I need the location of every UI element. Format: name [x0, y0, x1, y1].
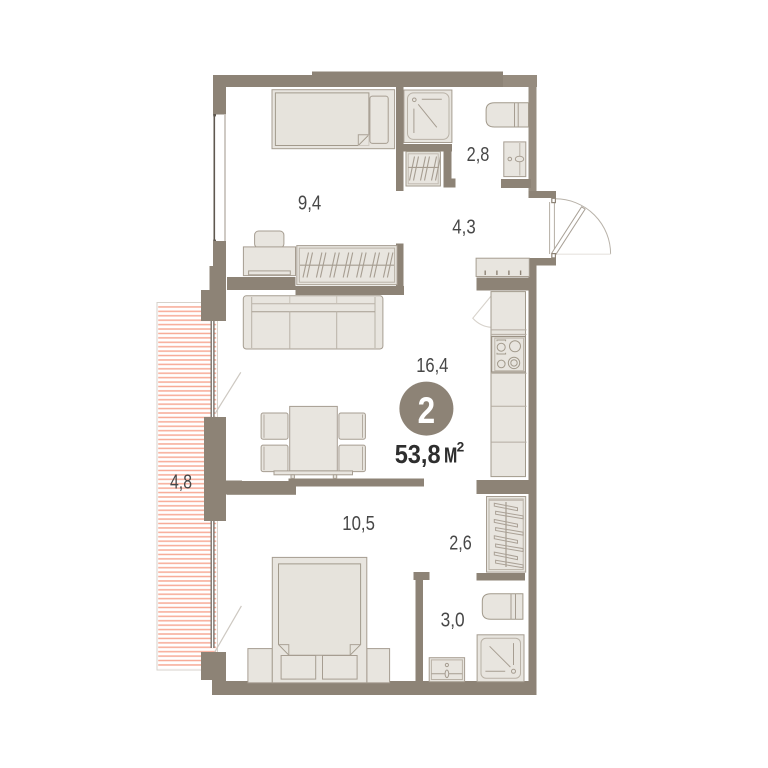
svg-text:10,5: 10,5 [342, 513, 375, 535]
svg-text:4,3: 4,3 [452, 217, 475, 239]
svg-text:2: 2 [418, 389, 436, 431]
svg-text:53,8: 53,8 [395, 441, 441, 469]
svg-text:3,0: 3,0 [441, 610, 465, 632]
svg-text:2,8: 2,8 [467, 144, 490, 166]
svg-text:2,6: 2,6 [449, 532, 472, 554]
svg-text:2: 2 [457, 440, 465, 455]
svg-text:4,8: 4,8 [170, 472, 192, 494]
svg-text:м: м [444, 436, 458, 468]
svg-text:9,4: 9,4 [298, 192, 321, 214]
svg-text:16,4: 16,4 [416, 355, 448, 377]
